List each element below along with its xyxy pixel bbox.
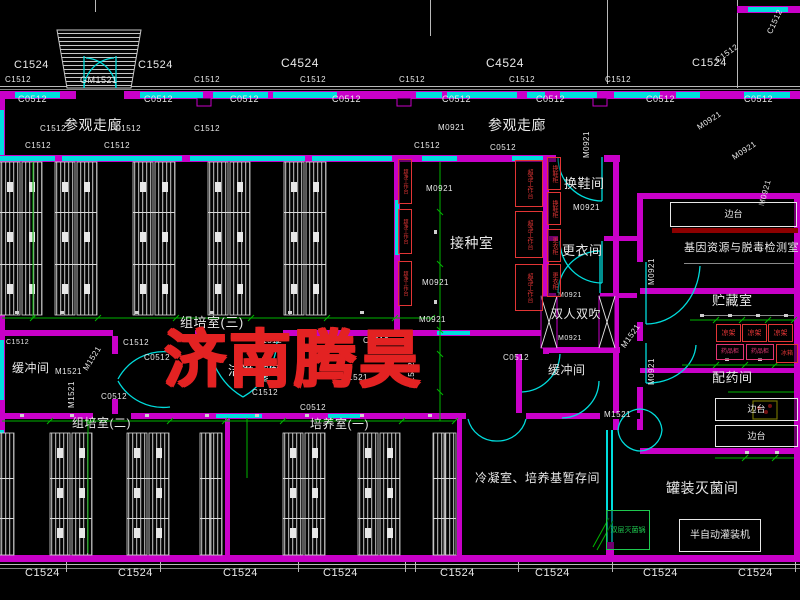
clothes-cabinet: 更衣柜 [547,264,561,297]
window-code: C1512 [6,339,29,346]
door-code: M1521 [604,411,631,419]
window-code: C1512 [123,339,149,347]
cooling-rack: 凉架 [768,324,793,342]
window-code: C1524 [138,60,173,71]
clean-bench: 超净工作台 [398,159,412,204]
window-code: C0512 [101,393,127,401]
clean-bench: 超净工作台 [398,209,412,254]
window-code: C1524 [14,60,49,71]
room-label: 缓冲间 [548,364,586,376]
room-label: 接种室 [450,236,494,250]
door-code: M0921 [419,316,446,324]
window-code: C1512 [194,125,220,133]
room-label: 换鞋间 [564,177,605,190]
room-label: 基因资源与脱毒检测室 [684,243,799,254]
window-code: C1524 [440,568,475,579]
clean-bench: 超净工作台 [515,160,543,207]
door-code: M0921 [426,185,453,193]
room-label: 冷凝室、培养基暂存间 [475,472,600,484]
window-code: C0512 [18,95,47,104]
door-code: M0921 [438,124,465,132]
window-code: C0512 [744,95,773,104]
door-code: M0921 [558,292,582,299]
floorplan-canvas: C1524C1524C4524C4524C1524C1512C1512C1512… [0,0,800,600]
window-code: C1512 [40,125,66,133]
cooling-rack: 凉架 [742,324,767,342]
cooling-rack: 凉架 [716,324,741,342]
window-code: C1512 [104,142,130,150]
fridge: 冰箱 [776,344,798,363]
window-code: C0512 [300,404,326,412]
room-label: 贮藏室 [712,294,753,307]
window-code: C1524 [323,568,358,579]
window-code: C1512 [414,142,440,150]
side-bench: 边台 [670,202,797,227]
door-code: M0921 [422,279,449,287]
window-code: C0512 [144,95,173,104]
clean-bench: 超净工作台 [515,264,543,311]
medicine-cabinet: 药品柜 [716,344,744,360]
window-code: C1512 [509,76,535,84]
door-code: M0921 [696,110,723,131]
window-code: C1512 [300,76,326,84]
watermark: 济南腾昊 [163,326,423,391]
room-label: 更衣间 [562,244,603,257]
clothes-cabinet: 更衣柜 [547,229,561,262]
room-label: 组培室(二) [72,417,131,429]
window-code: C0512 [230,95,259,104]
window-code: C1512 [605,76,631,84]
shoe-cabinet: 换鞋柜 [547,157,561,190]
window-code: C1512 [115,125,141,133]
clean-bench: 超净工作台 [398,261,412,306]
room-label: 罐装灭菌间 [666,481,739,495]
medicine-cabinet: 药品柜 [746,344,774,360]
door-code: M1521 [620,323,642,350]
window-code: C4524 [486,57,524,69]
door-code: M0921 [583,131,591,158]
door-code: M0921 [558,335,582,342]
window-code: C0512 [503,354,529,362]
door-code: M0921 [731,140,758,161]
side-bench: 边台 [715,425,798,447]
window-code: C1524 [118,568,153,579]
door-code: M1521 [55,368,82,376]
sterilizer: 双层灭菌锅 [606,510,650,550]
window-code: C1512 [399,76,425,84]
room-label: 参观走廊 [64,118,122,132]
window-code: C0512 [332,95,361,104]
window-code: C4524 [281,57,319,69]
clean-bench: 超净工作台 [515,211,543,258]
room-label: 配药间 [712,371,753,384]
door-code: M0921 [573,204,600,212]
window-code: C0512 [536,95,565,104]
filling-machine: 半自动灌装机 [679,519,761,552]
door-code: M1521 [68,381,76,408]
door-code: GM1521 [80,76,118,85]
door-code: M0921 [648,258,656,285]
window-code: C1512 [194,76,220,84]
window-code: C0512 [442,95,471,104]
window-code: C1512 [766,8,784,35]
window-code: C1512 [5,76,31,84]
window-code: C1524 [738,568,773,579]
window-code: C0512 [490,144,516,152]
window-code: C1524 [25,568,60,579]
side-bench: 边台 [715,398,798,421]
shoe-cabinet: 换鞋柜 [547,192,561,225]
room-label: 缓冲间 [12,362,50,374]
window-code: C1524 [535,568,570,579]
window-code: C1524 [223,568,258,579]
labels-layer: C1524C1524C4524C4524C1524C1512C1512C1512… [0,0,800,600]
window-code: C1512 [714,43,740,65]
window-code: C0512 [646,95,675,104]
door-code: M1521 [82,345,103,372]
room-label: 双人双吹 [551,308,601,320]
window-code: C1524 [643,568,678,579]
room-label: 参观走廊 [488,118,546,132]
room-label: 培养室(一) [310,418,369,430]
door-code: M0921 [648,358,656,385]
window-code: C1512 [25,142,51,150]
